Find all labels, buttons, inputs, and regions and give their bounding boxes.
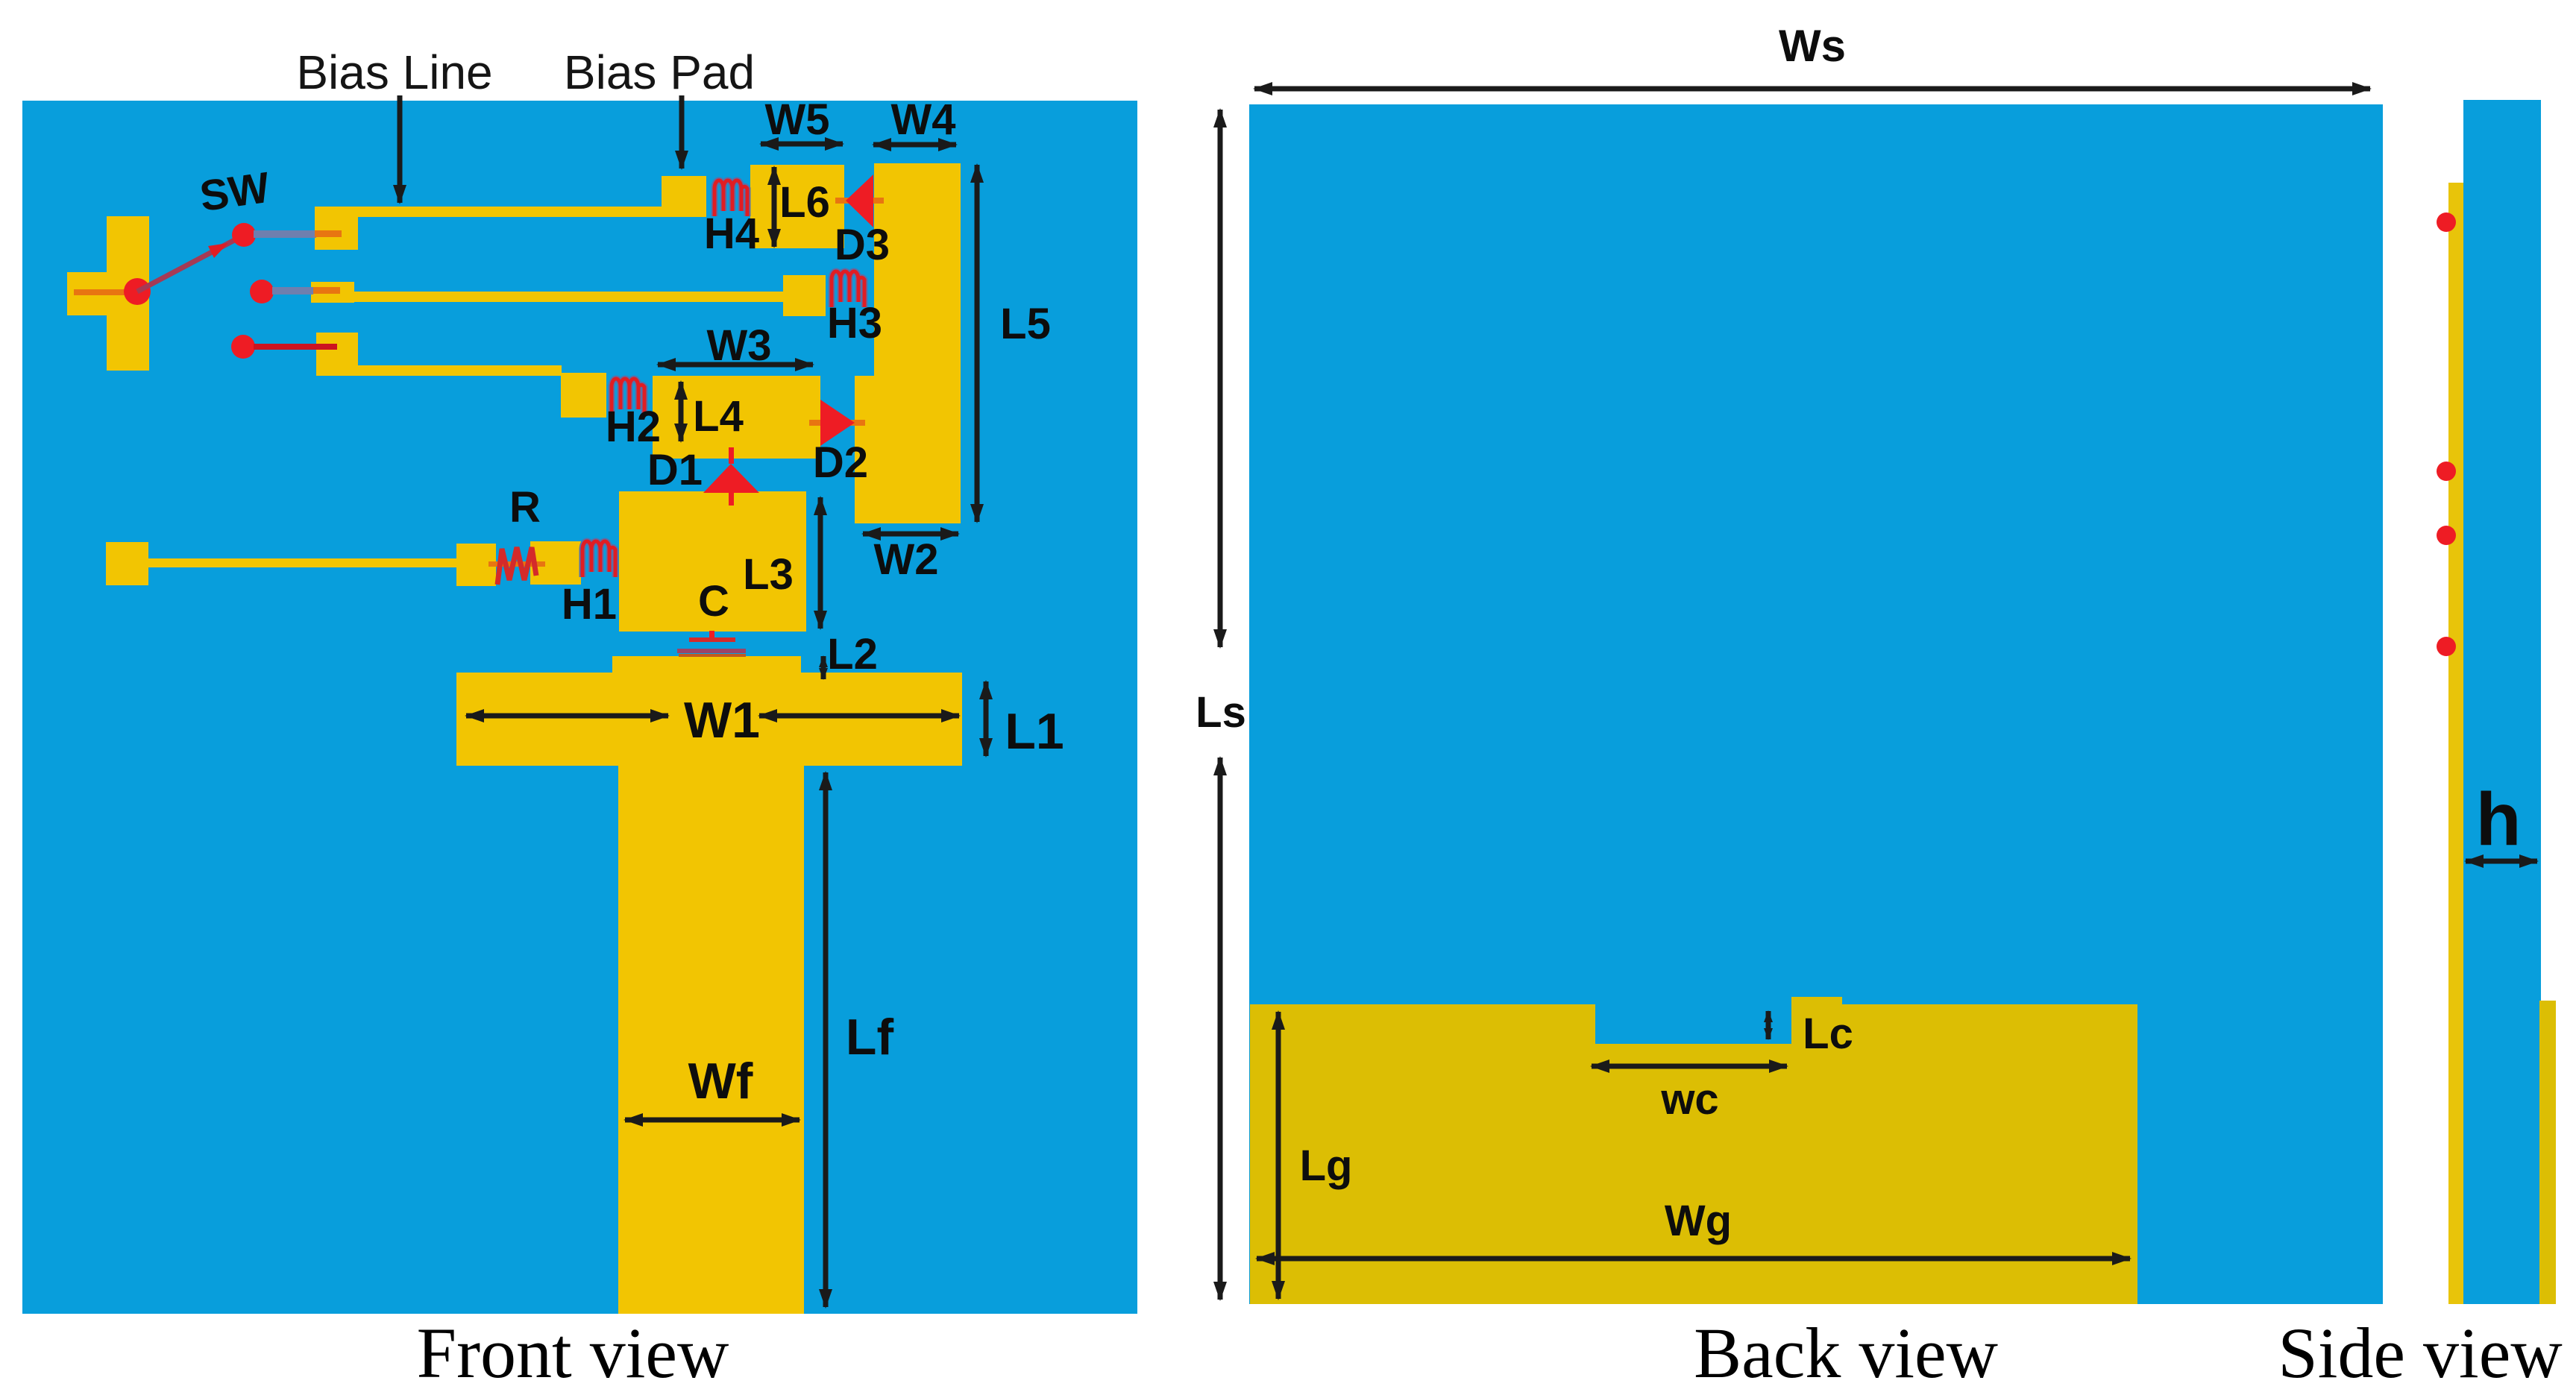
- svg-text:W5: W5: [765, 95, 830, 144]
- svg-text:Wg: Wg: [1665, 1197, 1732, 1245]
- svg-text:D2: D2: [813, 438, 868, 487]
- svg-text:h: h: [2475, 778, 2521, 861]
- svg-text:C: C: [698, 577, 729, 626]
- svg-text:L5: L5: [1000, 300, 1051, 348]
- svg-text:W1: W1: [684, 692, 760, 749]
- svg-text:H3: H3: [827, 299, 882, 347]
- svg-text:Wf: Wf: [688, 1053, 753, 1109]
- svg-text:Side view: Side view: [2278, 1313, 2562, 1393]
- svg-text:Lc: Lc: [1803, 1010, 1853, 1058]
- svg-text:Ls: Ls: [1196, 688, 1246, 737]
- svg-text:L6: L6: [779, 178, 830, 227]
- svg-text:SW: SW: [197, 163, 273, 221]
- svg-text:Front view: Front view: [417, 1313, 729, 1393]
- svg-text:Ws: Ws: [1779, 21, 1846, 71]
- svg-text:H2: H2: [606, 403, 661, 451]
- svg-text:L1: L1: [1005, 703, 1064, 760]
- svg-text:D1: D1: [647, 446, 703, 494]
- svg-text:Back view: Back view: [1694, 1313, 1998, 1393]
- svg-text:Lf: Lf: [846, 1009, 894, 1065]
- svg-text:H4: H4: [704, 210, 759, 258]
- svg-text:D3: D3: [835, 221, 890, 269]
- svg-text:W4: W4: [891, 95, 956, 144]
- svg-text:Lg: Lg: [1300, 1142, 1353, 1190]
- svg-text:R: R: [509, 483, 541, 532]
- svg-text:L2: L2: [827, 630, 878, 678]
- svg-text:Bias Line: Bias Line: [296, 45, 492, 99]
- svg-text:wc: wc: [1660, 1075, 1718, 1124]
- svg-text:Bias Pad: Bias Pad: [564, 45, 755, 99]
- svg-text:H1: H1: [562, 580, 617, 629]
- svg-text:L3: L3: [743, 550, 794, 599]
- svg-text:L4: L4: [693, 392, 744, 441]
- svg-text:W2: W2: [874, 535, 939, 584]
